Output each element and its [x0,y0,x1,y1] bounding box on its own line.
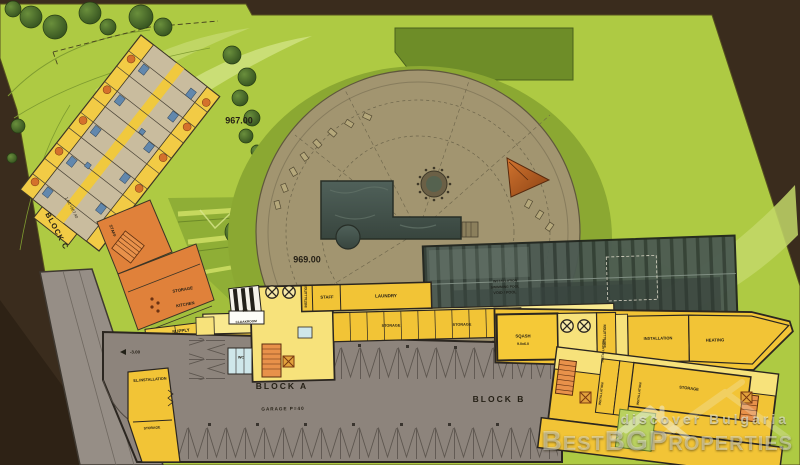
installation-room [628,315,690,362]
site-plan: BLOCK C 1.60 +967.40 967.00 969.00 -3.00… [0,0,800,465]
site-plan-drawing [0,0,800,465]
parking-stalls [150,427,558,460]
squash-court [497,313,559,360]
staff-laundry-rooms [301,282,432,311]
cloakroom-box [229,311,264,324]
storage-cells [333,308,522,342]
pool-steps [462,222,478,237]
stairs [262,344,281,377]
round-pool [336,225,360,249]
parking-stalls [189,338,225,380]
